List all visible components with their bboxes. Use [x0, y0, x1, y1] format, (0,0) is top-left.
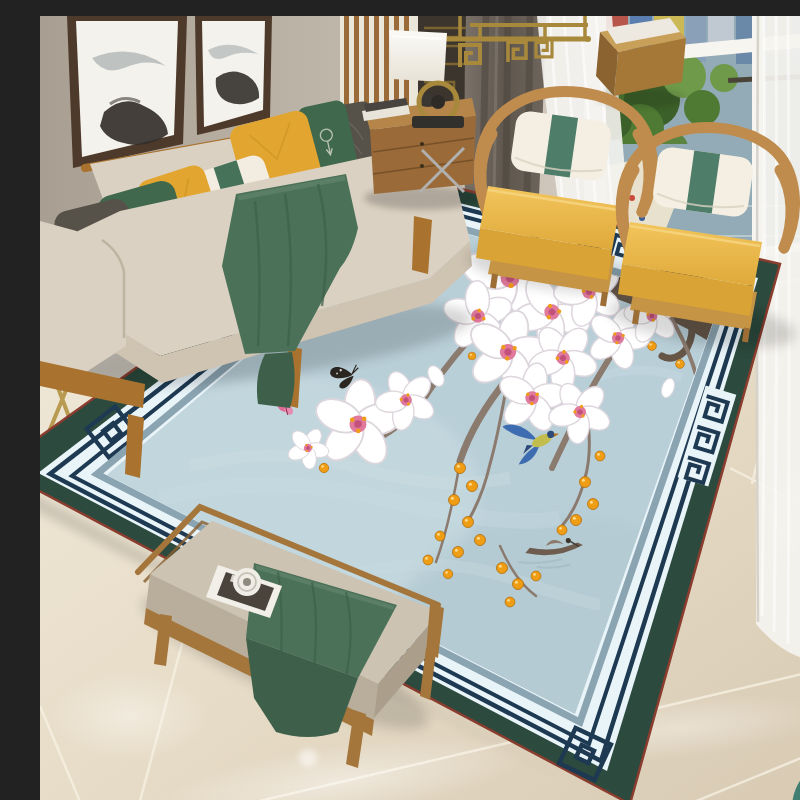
- painting-right: [195, 16, 272, 135]
- lamp-base: [412, 116, 464, 128]
- painting-left: [67, 16, 187, 168]
- living-room-photo: [40, 16, 800, 800]
